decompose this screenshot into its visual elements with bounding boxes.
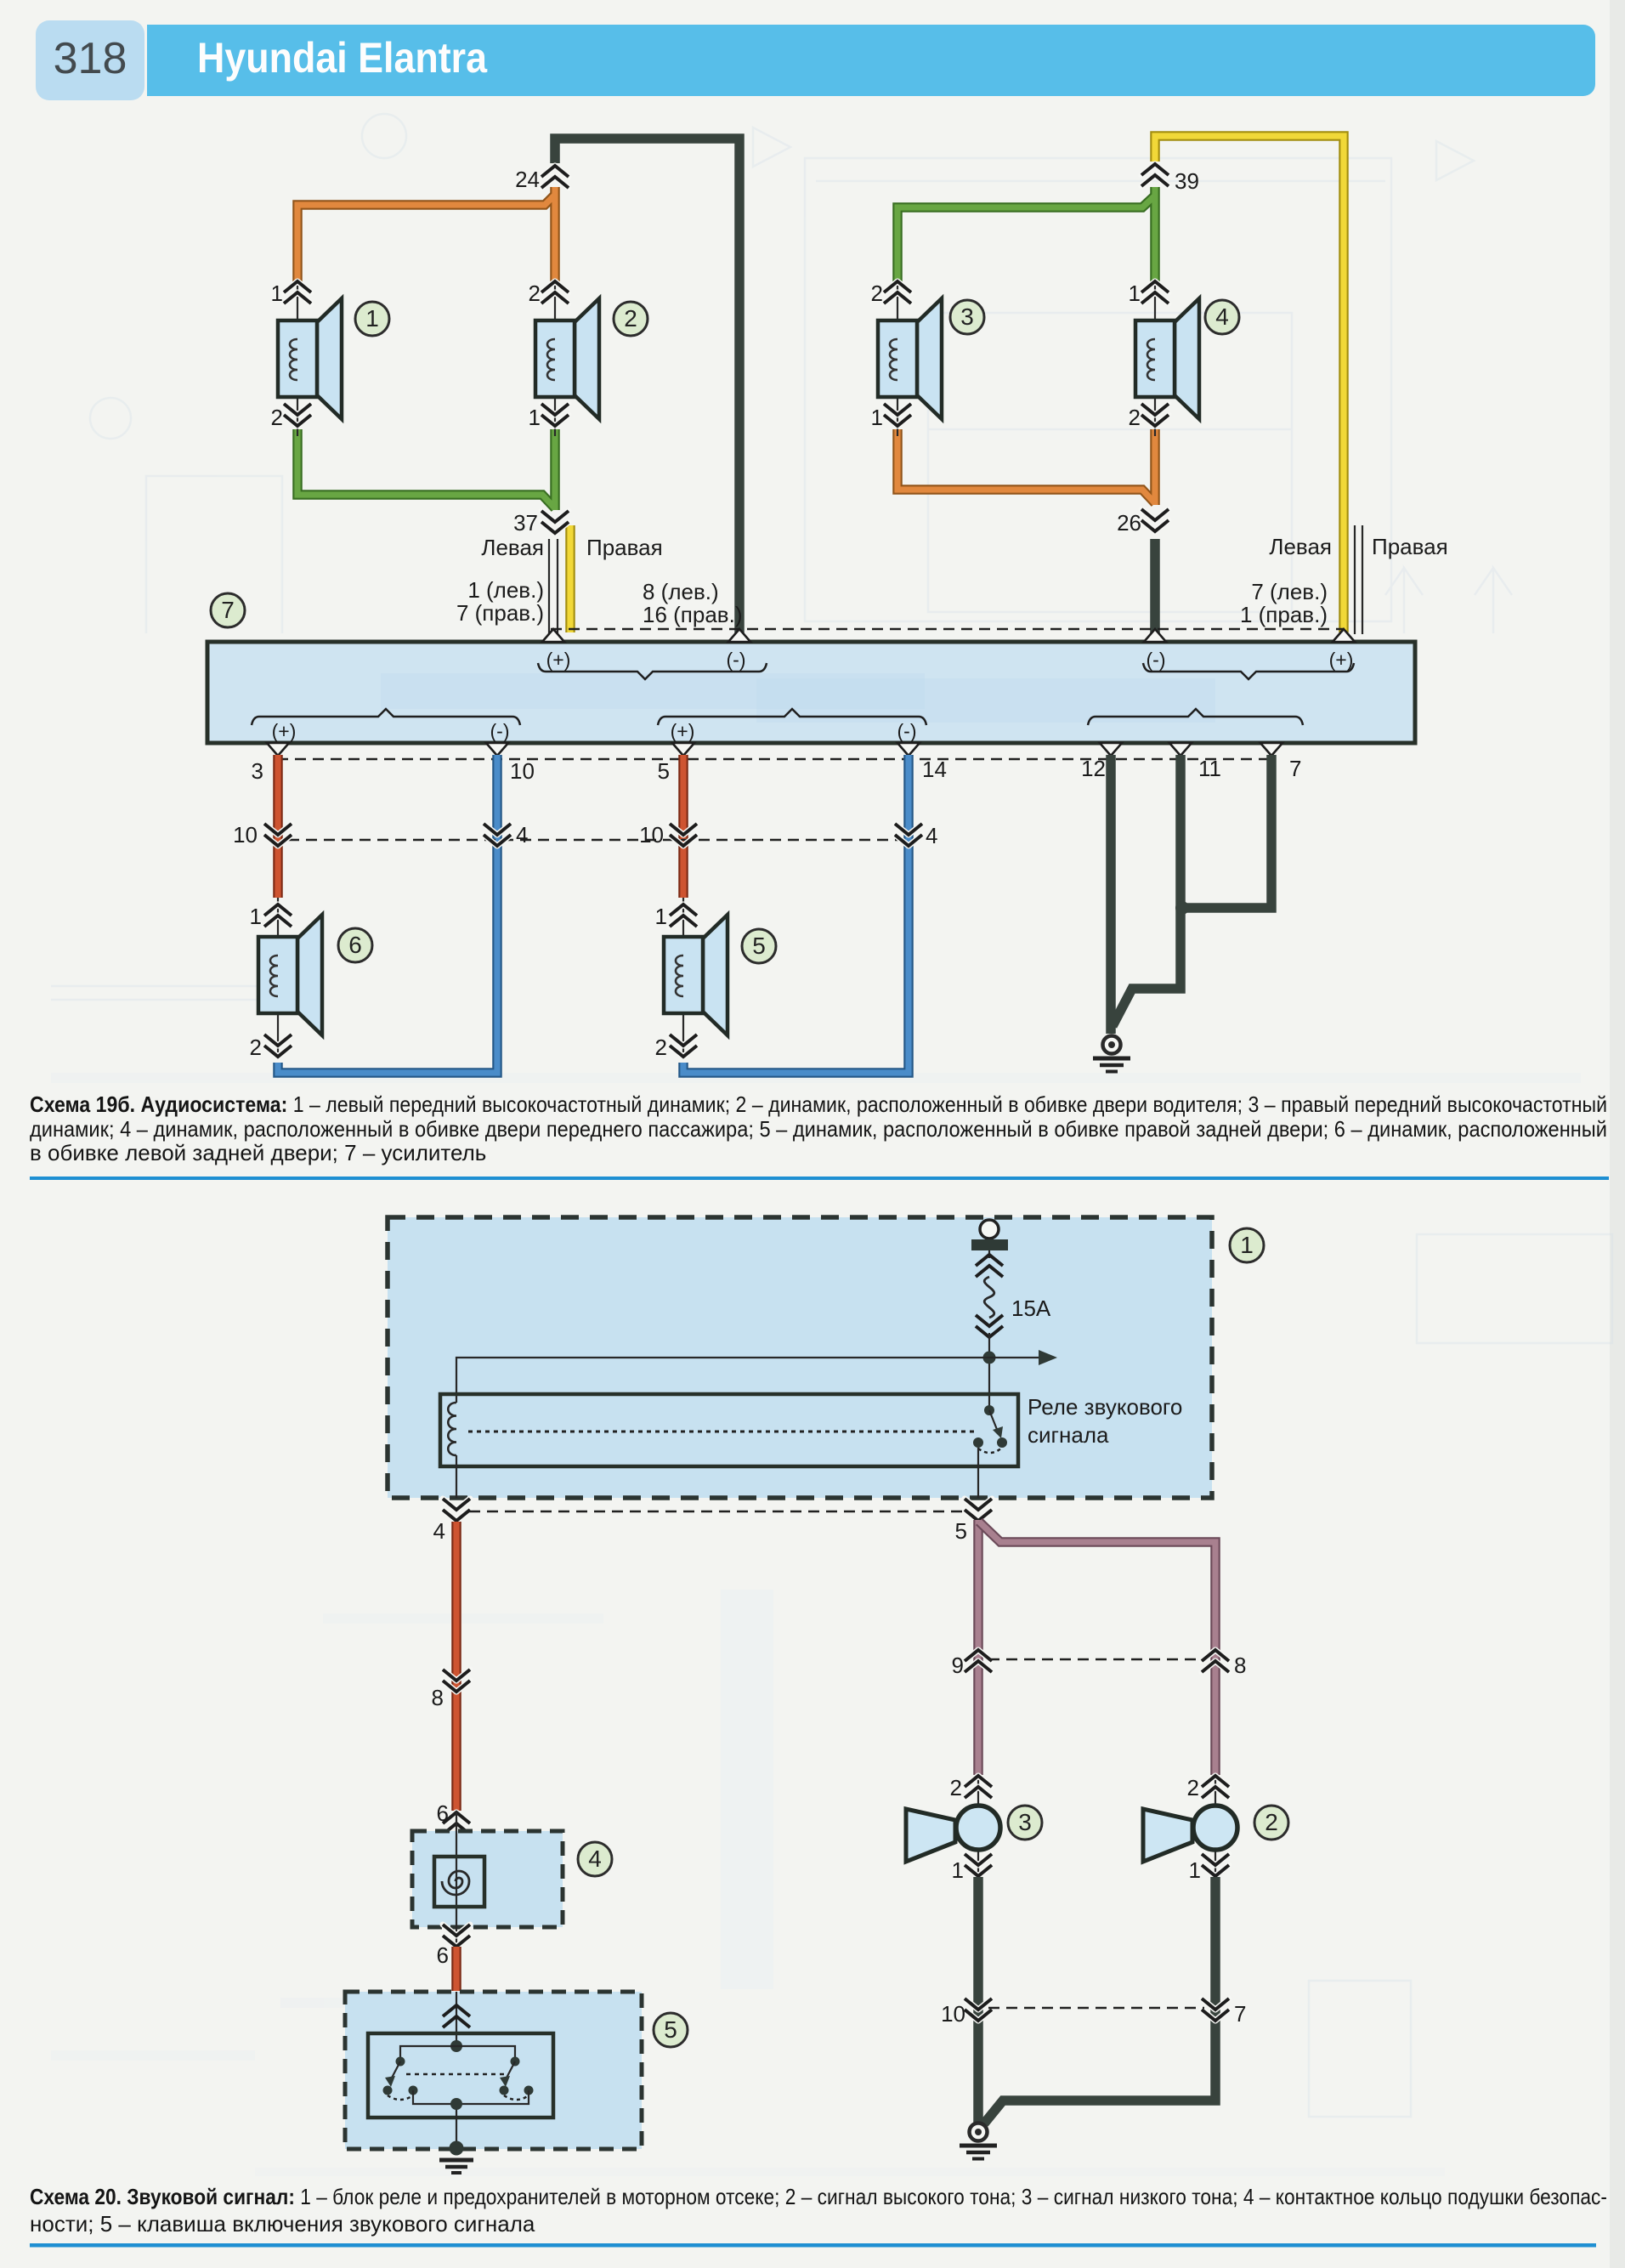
svg-text:(+): (+) [546,649,571,671]
svg-text:Правая: Правая [1372,534,1448,559]
svg-text:Левая: Левая [481,535,544,560]
svg-text:1: 1 [952,1857,964,1883]
svg-text:2: 2 [871,281,883,306]
svg-text:37: 37 [513,510,538,536]
svg-text:3: 3 [960,303,974,330]
svg-text:7 (прав.): 7 (прав.) [456,600,544,626]
svg-text:6: 6 [348,932,362,958]
svg-text:3: 3 [252,758,263,784]
svg-text:15A: 15A [1011,1296,1051,1321]
svg-text:2: 2 [950,1775,962,1800]
svg-text:Hyundai Elantra: Hyundai Elantra [197,34,488,82]
svg-text:Схема 19б. Аудиосистема: 1 – л: Схема 19б. Аудиосистема: 1 – левый перед… [30,1091,1607,1117]
svg-text:26: 26 [1117,510,1141,536]
svg-text:4: 4 [926,823,937,848]
svg-text:10: 10 [510,758,535,784]
svg-text:1: 1 [871,405,883,430]
svg-text:16 (прав.): 16 (прав.) [643,602,743,627]
svg-text:7: 7 [221,597,235,623]
svg-text:7: 7 [1234,2001,1246,2027]
svg-text:4: 4 [1215,303,1229,330]
svg-text:(-): (-) [490,720,510,742]
svg-text:11: 11 [1198,756,1221,781]
svg-text:8: 8 [1234,1653,1246,1678]
svg-text:2: 2 [655,1035,667,1060]
svg-text:динамик; 4 – динамик, располож: динамик; 4 – динамик, расположенный в об… [30,1116,1607,1142]
svg-text:(+): (+) [1329,649,1354,671]
svg-text:в обивке левой задней двери; 7: в обивке левой задней двери; 7 – усилите… [30,1140,486,1165]
svg-text:1: 1 [529,405,541,430]
svg-text:14: 14 [922,757,947,782]
svg-text:1: 1 [365,305,379,332]
svg-text:1: 1 [1240,1232,1254,1258]
svg-text:4: 4 [588,1846,602,1872]
svg-text:1: 1 [1189,1857,1201,1883]
svg-text:Реле звукового: Реле звукового [1028,1394,1182,1420]
svg-text:6: 6 [437,1800,449,1826]
svg-text:1: 1 [655,904,667,929]
svg-text:10: 10 [941,2001,965,2027]
svg-text:8 (лев.): 8 (лев.) [643,579,719,604]
svg-text:(+): (+) [272,720,297,742]
svg-text:12: 12 [1081,756,1106,781]
svg-text:Правая: Правая [586,535,663,560]
svg-text:9: 9 [952,1653,964,1678]
svg-text:4: 4 [433,1518,445,1544]
svg-text:1: 1 [250,904,262,929]
svg-text:6: 6 [437,1942,449,1968]
svg-text:2: 2 [624,305,637,332]
svg-text:(-): (-) [1147,649,1166,671]
svg-text:2: 2 [1187,1775,1199,1800]
svg-text:2: 2 [529,281,541,306]
svg-text:1 (прав.): 1 (прав.) [1240,602,1328,627]
svg-text:318: 318 [54,34,127,83]
svg-text:1 (лев.): 1 (лев.) [467,577,544,603]
svg-text:2: 2 [1265,1809,1278,1835]
svg-text:5: 5 [752,933,766,959]
svg-text:8: 8 [432,1685,444,1710]
svg-text:7: 7 [1289,756,1301,781]
svg-text:3: 3 [1018,1809,1032,1835]
svg-text:1: 1 [271,281,283,306]
svg-text:(-): (-) [897,720,917,742]
svg-text:2: 2 [271,405,283,430]
svg-text:Схема 20. Звуковой сигнал: 1 –: Схема 20. Звуковой сигнал: 1 – блок реле… [30,2184,1607,2209]
svg-text:Левая: Левая [1269,534,1332,559]
svg-text:2: 2 [250,1035,262,1060]
svg-text:39: 39 [1175,168,1199,194]
svg-text:4: 4 [516,822,528,848]
svg-text:сигнала: сигнала [1028,1422,1109,1448]
svg-text:2: 2 [1129,405,1141,430]
svg-text:7 (лев.): 7 (лев.) [1251,579,1328,604]
svg-text:5: 5 [955,1518,967,1544]
svg-text:10: 10 [233,822,258,848]
svg-text:5: 5 [658,758,670,784]
svg-text:ности; 5 – клавиша включения з: ности; 5 – клавиша включения звукового с… [30,2211,535,2237]
svg-text:(-): (-) [727,649,746,671]
svg-text:(+): (+) [671,720,695,742]
svg-text:24: 24 [515,167,540,192]
svg-text:10: 10 [639,822,664,848]
svg-text:5: 5 [664,2016,677,2043]
svg-text:1: 1 [1129,281,1141,306]
